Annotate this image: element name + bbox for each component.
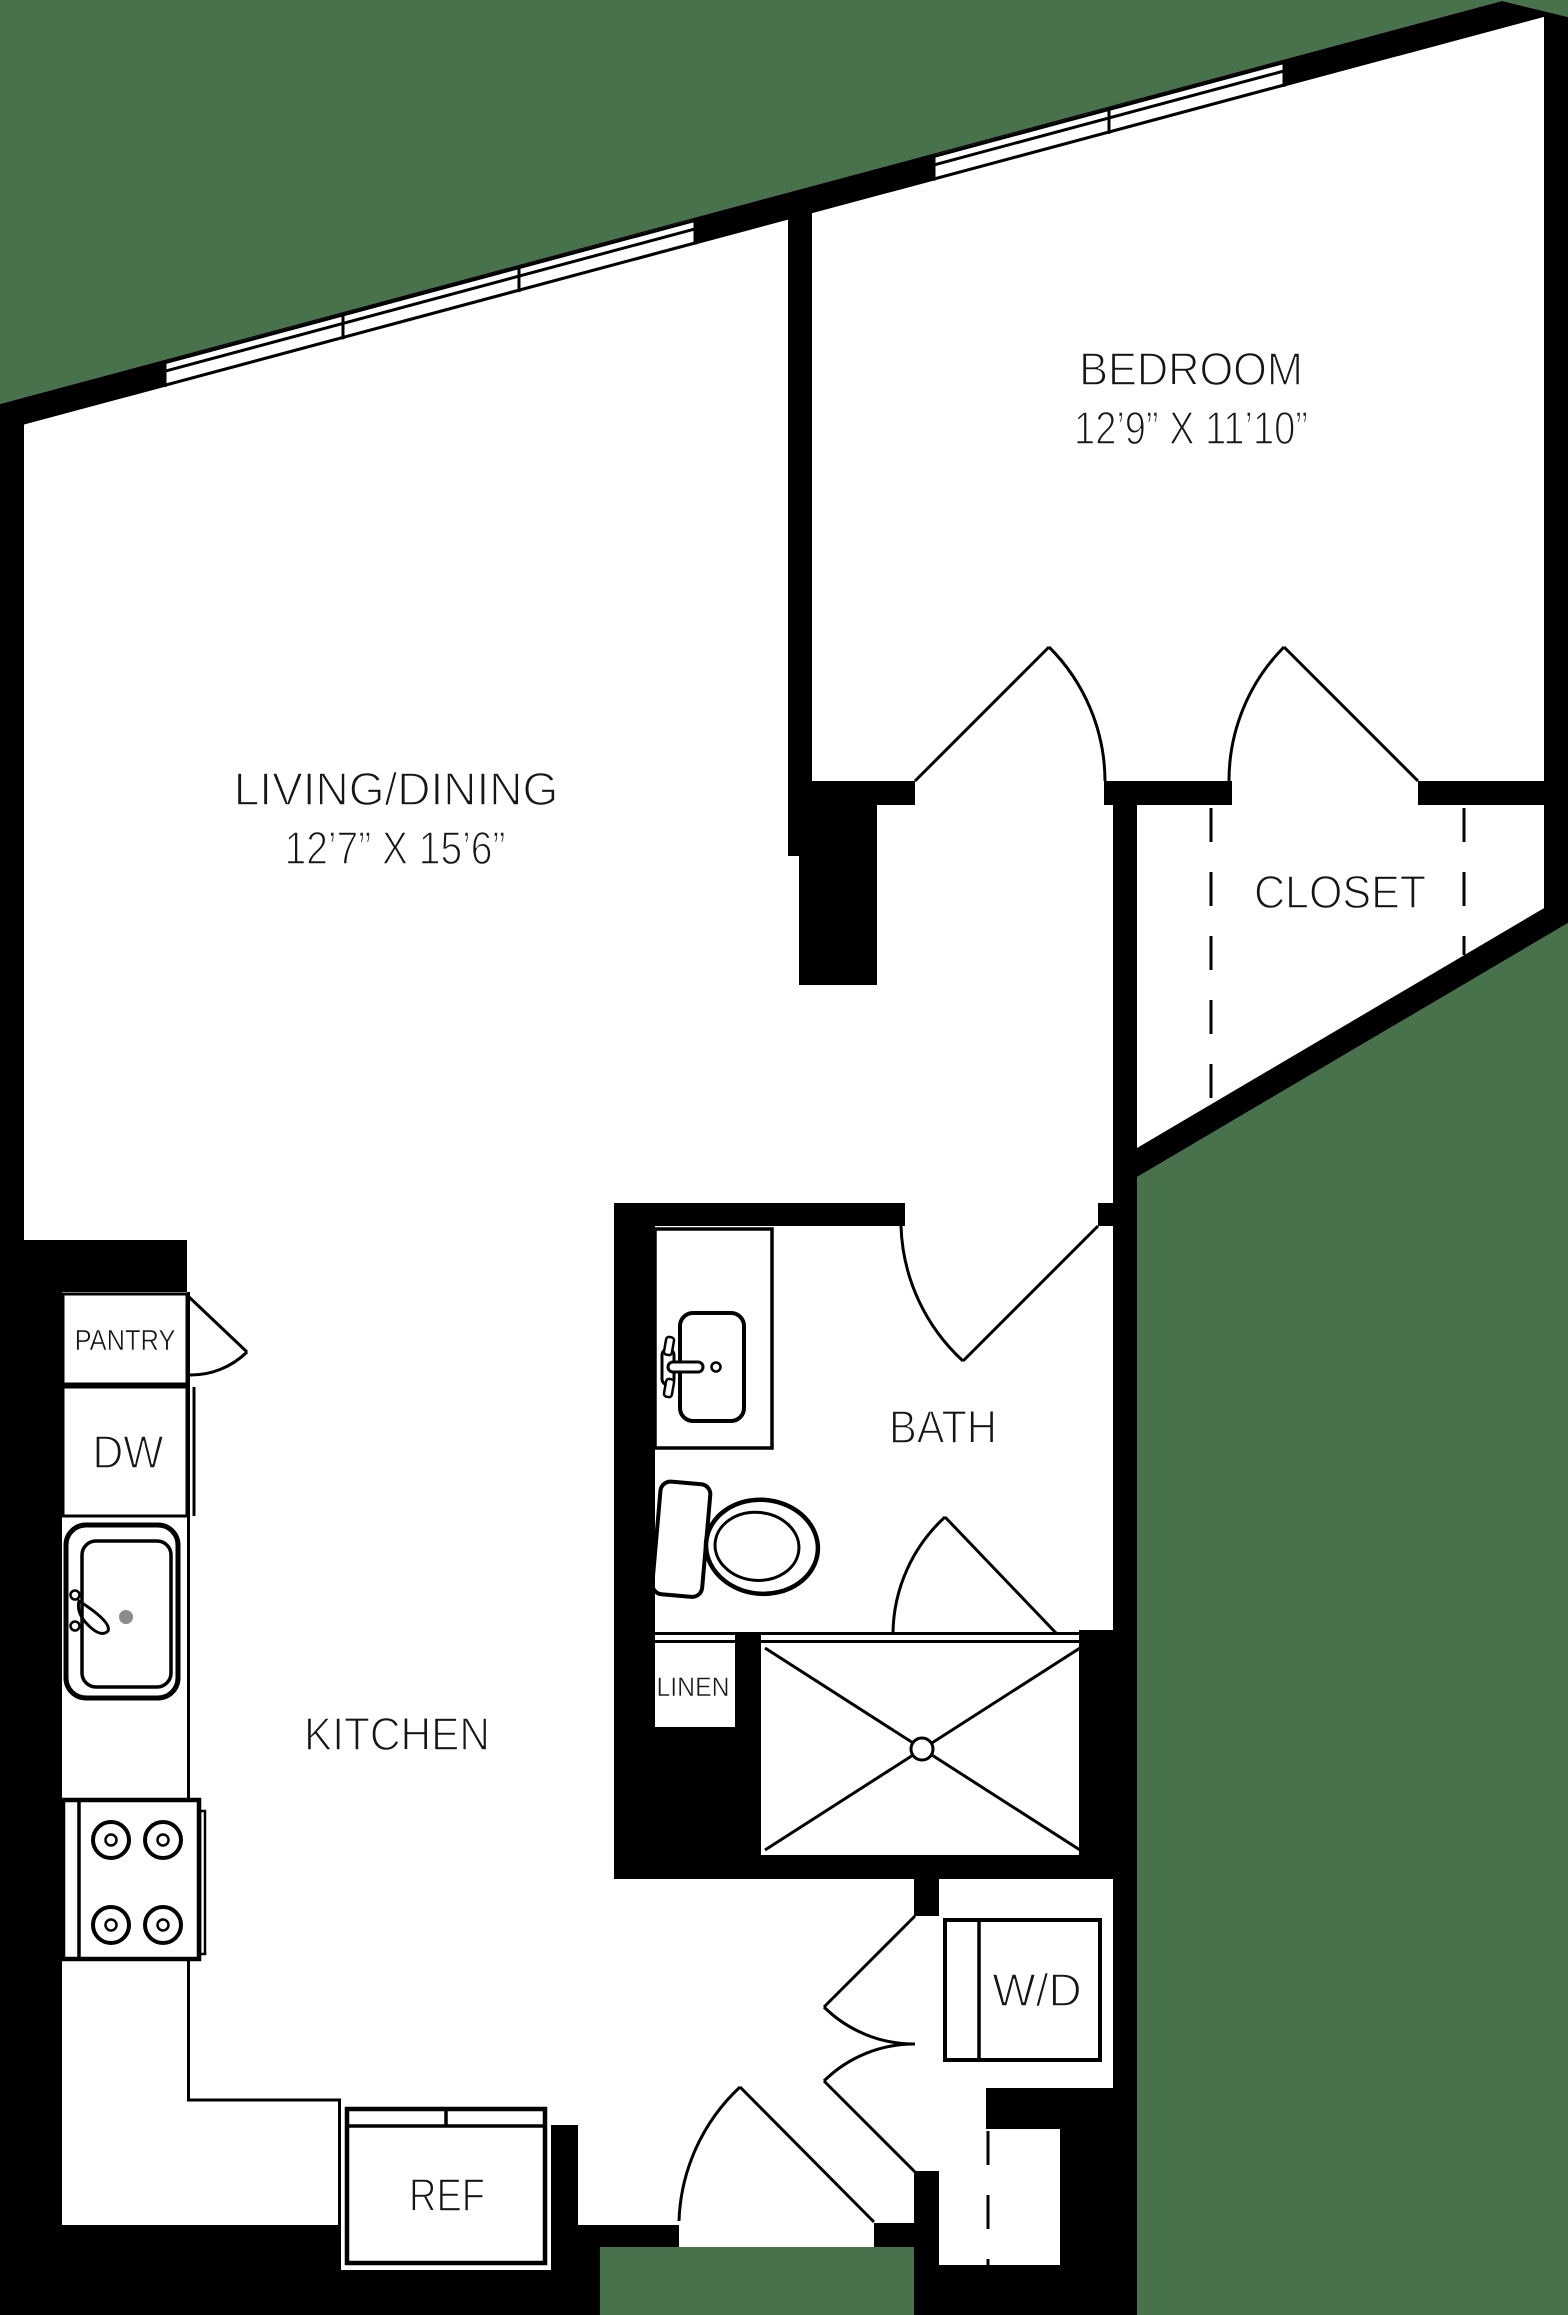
- svg-text:REF: REF: [409, 2170, 485, 2221]
- svg-text:W/D: W/D: [992, 1964, 1081, 2016]
- svg-text:KITCHEN: KITCHEN: [304, 1709, 490, 1760]
- svg-text:12’7” X 15’6”: 12’7” X 15’6”: [285, 823, 506, 875]
- svg-text:BEDROOM: BEDROOM: [1079, 345, 1303, 395]
- svg-text:12’9” X 11’10”: 12’9” X 11’10”: [1074, 403, 1308, 454]
- svg-text:LINEN: LINEN: [657, 1673, 730, 1702]
- svg-text:PANTRY: PANTRY: [75, 1323, 176, 1356]
- svg-text:LIVING/DINING: LIVING/DINING: [234, 763, 559, 815]
- svg-text:CLOSET: CLOSET: [1254, 868, 1426, 919]
- svg-text:DW: DW: [92, 1428, 163, 1479]
- svg-text:BATH: BATH: [889, 1402, 997, 1453]
